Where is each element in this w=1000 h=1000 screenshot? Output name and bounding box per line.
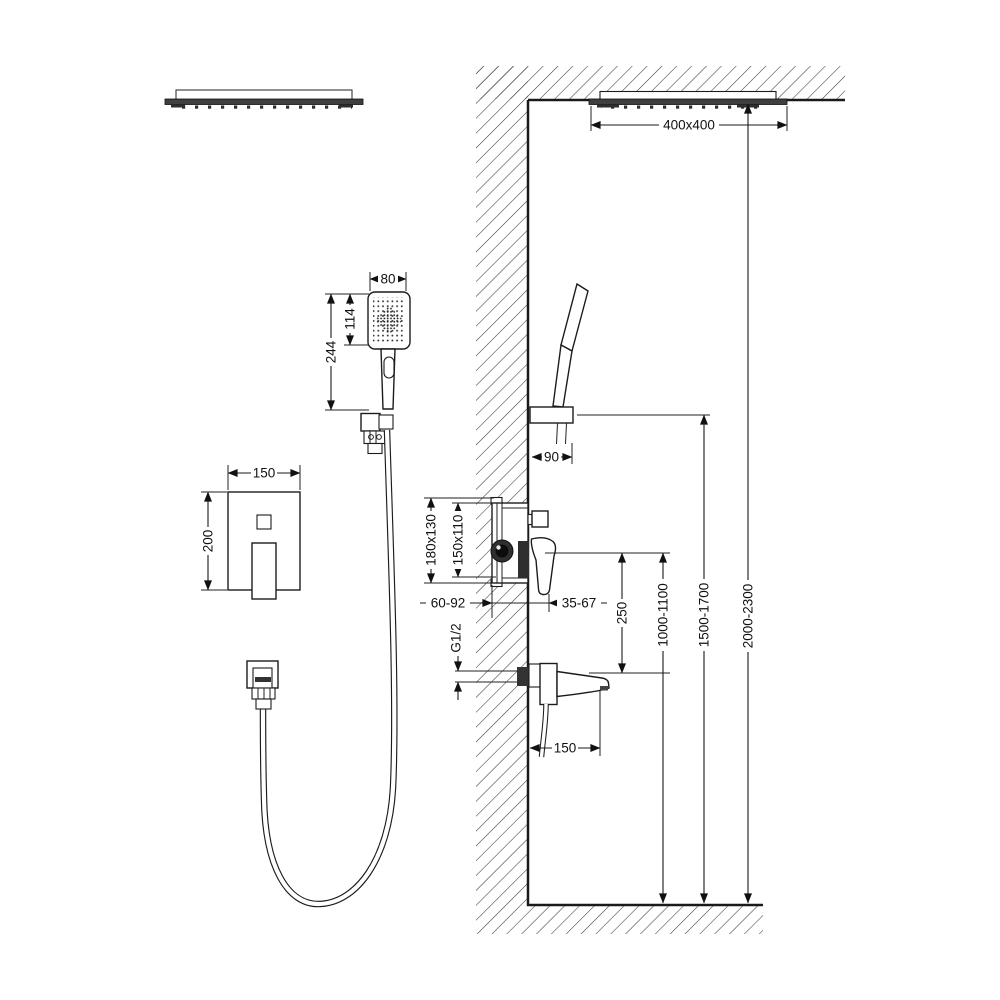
dim-label-rain-head-height: 2000-2300 bbox=[741, 584, 756, 649]
head-panel-installed bbox=[589, 99, 787, 105]
hand-shower-in-holder-head bbox=[561, 284, 588, 351]
dim-label-hand-width: 80 bbox=[380, 272, 395, 287]
wall-section bbox=[476, 66, 845, 934]
dim-holder-height: 1500-1700 bbox=[697, 415, 712, 903]
spout-aerator bbox=[600, 686, 608, 691]
valve-body bbox=[491, 498, 556, 595]
holder-bracket bbox=[530, 407, 573, 423]
head-nozzles bbox=[176, 105, 352, 110]
dim-protrusion: 35-67 bbox=[549, 596, 607, 611]
spout-wall-fitting bbox=[517, 667, 530, 686]
dim-label-spout-length: 150 bbox=[554, 741, 577, 756]
outlet-collar bbox=[256, 699, 271, 709]
dim-hand-shower-width: 80 bbox=[370, 272, 406, 292]
hose-collar bbox=[368, 444, 382, 454]
dim-hand-shower-head-length: 114 bbox=[325, 294, 369, 345]
dim-label-holder-offset: 90 bbox=[544, 450, 559, 465]
dim-label-thread-size: G1/2 bbox=[449, 623, 464, 652]
dim-label-holder-height: 1500-1700 bbox=[697, 583, 712, 648]
dim-label-embed-depth: 60-92 bbox=[431, 596, 466, 611]
dim-label-hand-total-length: 244 bbox=[324, 340, 339, 363]
wall-hatch bbox=[476, 66, 528, 906]
spout-arm bbox=[557, 672, 609, 697]
dim-label-trim-height: 200 bbox=[201, 530, 216, 553]
spout-escutcheon bbox=[529, 664, 541, 687]
dim-trim-height: 200 bbox=[201, 492, 228, 590]
spout-body bbox=[540, 664, 557, 705]
mixer-trim-detail bbox=[228, 492, 300, 599]
dim-trim-width: 150 bbox=[228, 465, 300, 490]
hose-elbow-body bbox=[361, 414, 380, 432]
dim-label-trim-width: 150 bbox=[253, 466, 276, 481]
trim-diverter-button bbox=[257, 515, 271, 529]
hose-elbow-nut-side bbox=[379, 415, 393, 429]
mixer-lever-side bbox=[531, 538, 555, 595]
hose-nut bbox=[364, 431, 386, 444]
floor-hatch bbox=[476, 906, 763, 934]
reference-lines bbox=[545, 415, 710, 673]
dim-label-mixer-height: 1000-1100 bbox=[656, 583, 671, 647]
dim-holder-offset: 90 bbox=[532, 443, 572, 465]
hand-shower-button bbox=[384, 357, 394, 378]
hand-shower-in-holder-handle bbox=[553, 345, 572, 407]
dim-rain-head-height: 2000-2300 bbox=[741, 104, 756, 903]
dim-mixer-to-spout: 250 bbox=[615, 553, 630, 673]
dim-label-hand-head-length: 114 bbox=[343, 308, 358, 330]
dim-label-mixer-to-spout: 250 bbox=[615, 602, 630, 625]
dim-thread-size: G1/2 bbox=[449, 620, 464, 700]
diverter-knob bbox=[532, 511, 548, 527]
dim-label-protrusion: 35-67 bbox=[562, 596, 597, 611]
hand-shower-detail bbox=[361, 292, 410, 454]
dim-label-rain-head-size: 400x400 bbox=[663, 118, 715, 133]
dim-mixer-height: 1000-1100 bbox=[656, 553, 671, 903]
valve-cartridge bbox=[518, 541, 529, 578]
valve-knob-highlight bbox=[496, 545, 500, 549]
rain-shower-head-installed bbox=[589, 92, 787, 110]
rain-shower-head-side-view bbox=[165, 90, 363, 109]
head-nozzles-installed bbox=[601, 105, 759, 110]
dim-rain-head-size: 400x400 bbox=[591, 106, 787, 133]
head-panel bbox=[165, 99, 363, 105]
diagram-canvas: 400x400 80 bbox=[0, 0, 1000, 1000]
trim-lever bbox=[252, 543, 276, 599]
dim-label-valve-outer: 180x130 bbox=[424, 514, 439, 566]
head-housing bbox=[600, 92, 776, 100]
hand-shower-holder bbox=[530, 284, 588, 444]
head-bracket-outline bbox=[176, 90, 352, 99]
dim-label-valve-inner: 150x110 bbox=[451, 515, 466, 566]
outlet-slot bbox=[255, 677, 271, 682]
wall-outlet-elbow bbox=[247, 661, 278, 709]
shower-installation-diagram: 400x400 80 bbox=[0, 0, 1000, 1000]
